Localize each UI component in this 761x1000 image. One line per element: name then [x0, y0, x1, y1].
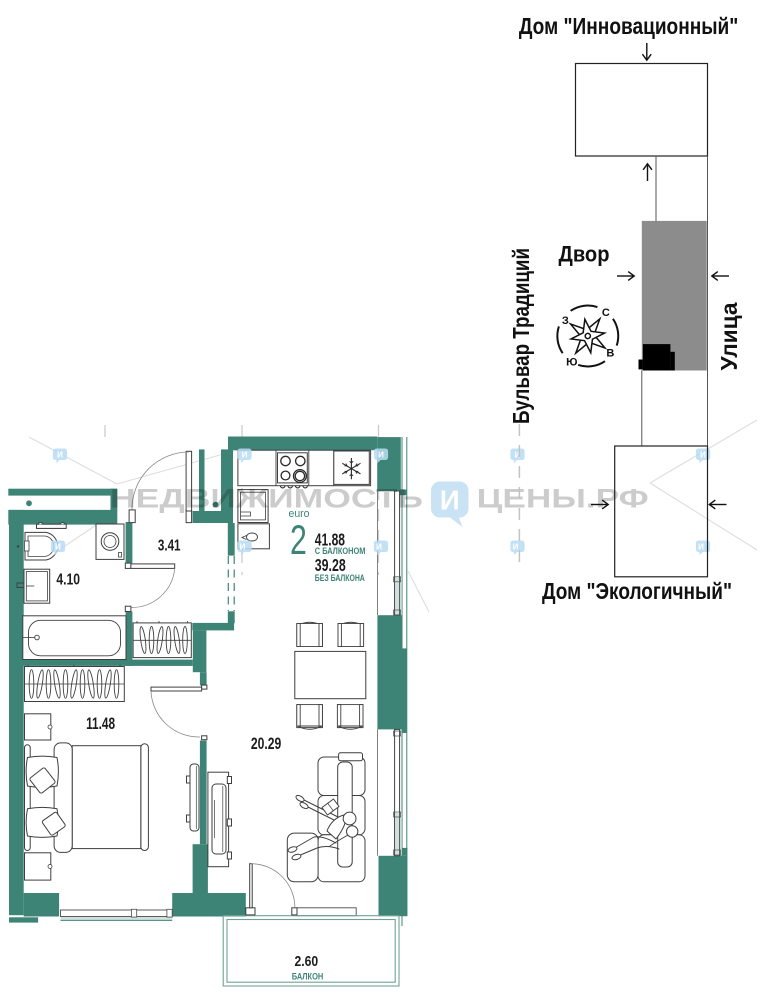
svg-text:11.48: 11.48 [86, 714, 115, 733]
svg-text:Двор: Двор [559, 242, 610, 267]
svg-text:И: И [698, 543, 704, 552]
svg-text:БЕЗ БАЛКОНА: БЕЗ БАЛКОНА [315, 573, 365, 583]
svg-text:БАЛКОН: БАЛКОН [292, 972, 324, 982]
svg-text:И: И [55, 543, 61, 552]
svg-text:С: С [602, 307, 610, 319]
svg-text:2.60: 2.60 [294, 953, 318, 970]
svg-text:Улица: Улица [716, 302, 742, 370]
svg-text:4.10: 4.10 [56, 572, 80, 589]
svg-text:И: И [700, 451, 706, 460]
svg-text:И: И [376, 543, 382, 552]
svg-text:И: И [378, 451, 384, 460]
svg-text:И: И [242, 451, 248, 460]
svg-text:20.29: 20.29 [251, 734, 281, 753]
svg-text:В: В [606, 348, 614, 360]
svg-text:И: И [513, 543, 519, 552]
svg-text:Ю: Ю [566, 357, 577, 369]
svg-text:ЦЕНЫ.РФ: ЦЕНЫ.РФ [477, 484, 649, 514]
svg-text:Дом "Экологичный": Дом "Экологичный" [542, 578, 732, 604]
svg-text:И: И [57, 451, 63, 460]
svg-text:Дом "Инновационный": Дом "Инновационный" [519, 13, 739, 39]
svg-text:З: З [562, 315, 569, 327]
svg-text:2: 2 [290, 516, 307, 563]
svg-text:НЕДВИЖИМОСТЬ: НЕДВИЖИМОСТЬ [110, 484, 423, 514]
svg-text:И: И [440, 485, 460, 516]
svg-text:Бульвар Традиций: Бульвар Традиций [508, 248, 534, 424]
svg-text:И: И [240, 543, 246, 552]
svg-text:3.41: 3.41 [158, 538, 181, 555]
